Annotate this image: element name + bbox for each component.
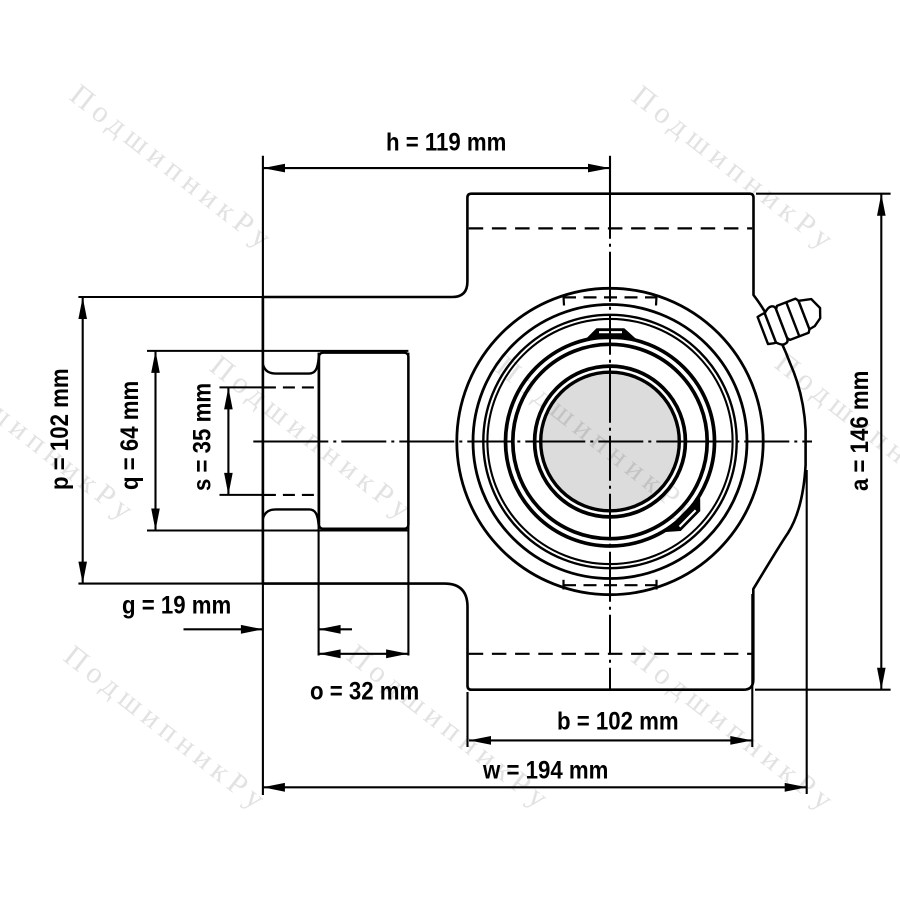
svg-text:o = 32 mm: o = 32 mm: [310, 677, 419, 706]
svg-text:p = 102 mm: p = 102 mm: [46, 368, 75, 490]
svg-text:a = 146 mm: a = 146 mm: [846, 371, 875, 491]
svg-text:w = 194 mm: w = 194 mm: [482, 756, 608, 785]
svg-text:s = 35 mm: s = 35 mm: [188, 383, 217, 491]
svg-text:g = 19 mm: g = 19 mm: [122, 591, 231, 620]
svg-text:q = 64 mm: q = 64 mm: [116, 381, 145, 490]
svg-text:h = 119 mm: h = 119 mm: [386, 128, 506, 157]
svg-text:b = 102 mm: b = 102 mm: [557, 707, 679, 736]
